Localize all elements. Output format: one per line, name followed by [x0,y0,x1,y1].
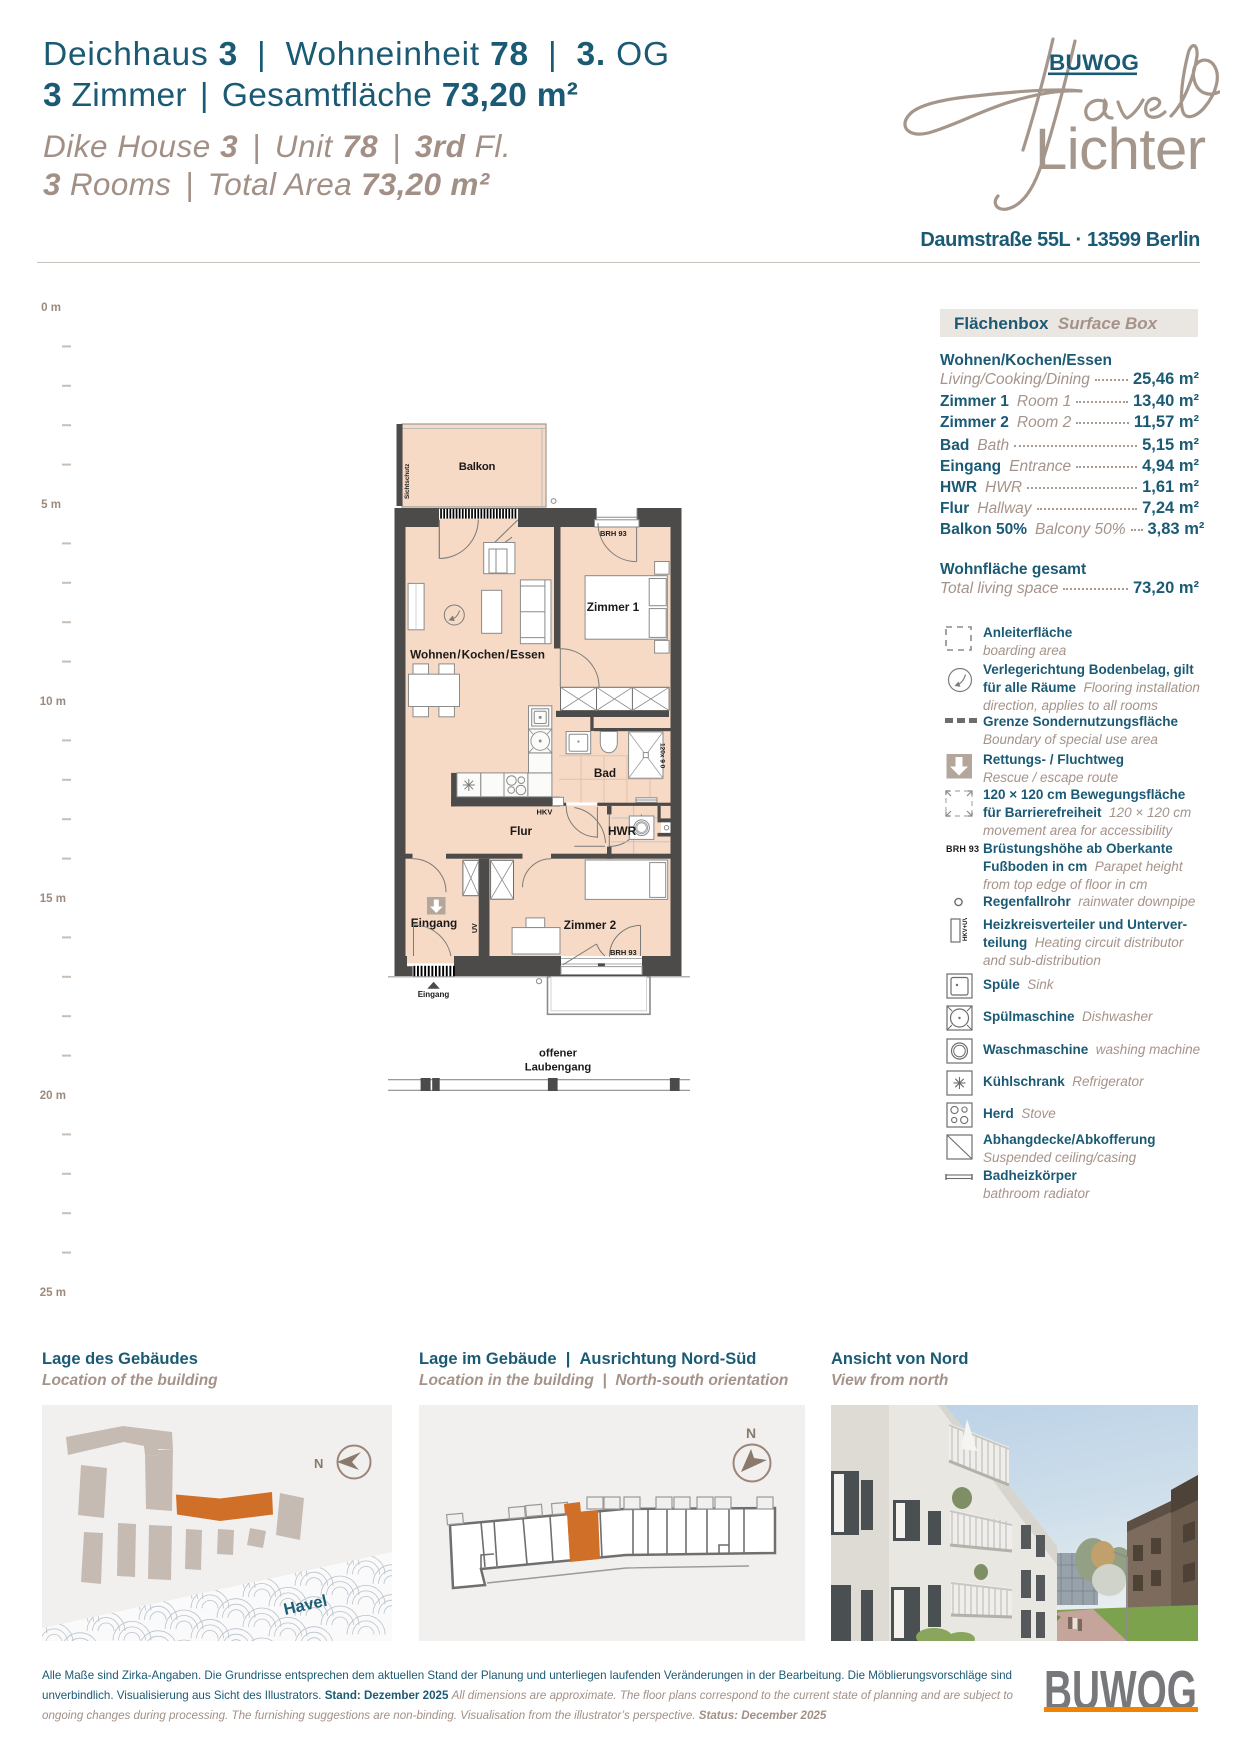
svg-text:Eingang: Eingang [411,916,458,930]
svg-text:BRH 93: BRH 93 [610,948,637,957]
svg-text:UV: UV [472,923,479,933]
svg-text:HKV: HKV [537,808,553,817]
svg-text:N: N [314,1456,323,1471]
svg-text:Zimmer 1: Zimmer 1 [587,600,640,614]
svg-text:Bad: Bad [594,766,616,780]
svg-text:Zimmer 2: Zimmer 2 [564,918,617,932]
svg-text:HWR: HWR [608,824,637,838]
svg-text:Laubengang: Laubengang [525,1062,592,1074]
svg-text:25 m: 25 m [40,1287,66,1299]
svg-text:Wohnen / Kochen / Essen: Wohnen / Kochen / Essen [410,648,545,662]
svg-text:5 m: 5 m [41,499,61,511]
svg-text:BRH 93: BRH 93 [600,529,627,538]
svg-text:offener: offener [539,1048,578,1060]
svg-text:10 m: 10 m [40,696,66,708]
svg-text:Sichtschutz: Sichtschutz [404,464,411,499]
svg-text:N: N [746,1425,756,1441]
svg-text:Lichter: Lichter [1035,117,1206,182]
svg-text:20 m: 20 m [40,1090,66,1102]
svg-text:Balkon: Balkon [459,461,496,473]
svg-text:Eingang: Eingang [418,990,450,999]
svg-text:15 m: 15 m [40,893,66,905]
svg-text:Flur: Flur [510,824,533,838]
svg-text:0 m: 0 m [41,302,61,314]
svg-text:BUWOG: BUWOG [1049,50,1139,75]
svg-text:120x 9 0: 120x 9 0 [659,743,666,769]
svg-text:HKV+UV: HKV+UV [963,918,969,941]
